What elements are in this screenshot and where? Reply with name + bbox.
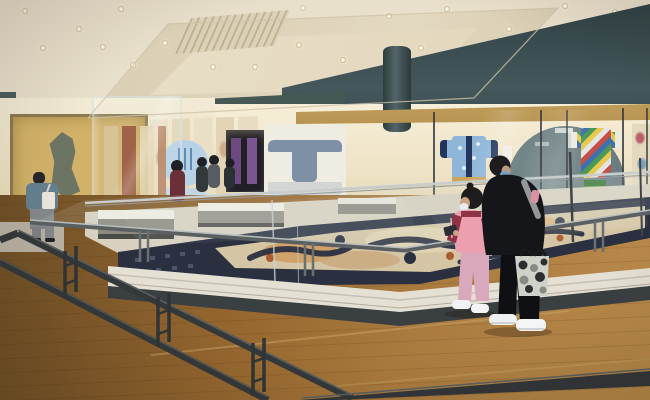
left-visitor-bag — [42, 192, 55, 209]
left-visitor — [26, 172, 58, 242]
museum-gallery-photo — [0, 0, 650, 400]
left-visitor-shoe — [45, 238, 55, 242]
child-collar — [461, 211, 481, 217]
left-visitor-hair — [33, 172, 45, 184]
background-visitor — [208, 155, 220, 188]
railing-h-post — [65, 246, 76, 297]
background-visitor — [224, 159, 235, 189]
ceiling-tray-edge — [88, 8, 558, 118]
background-visitor — [196, 157, 208, 192]
child-shoe — [471, 304, 489, 313]
child-hand — [453, 230, 459, 236]
scene-layer — [0, 0, 650, 400]
railing-h-post — [253, 338, 264, 396]
camo-tote-bag — [515, 250, 549, 296]
child-mask — [460, 203, 469, 211]
child-shoe — [452, 300, 471, 309]
